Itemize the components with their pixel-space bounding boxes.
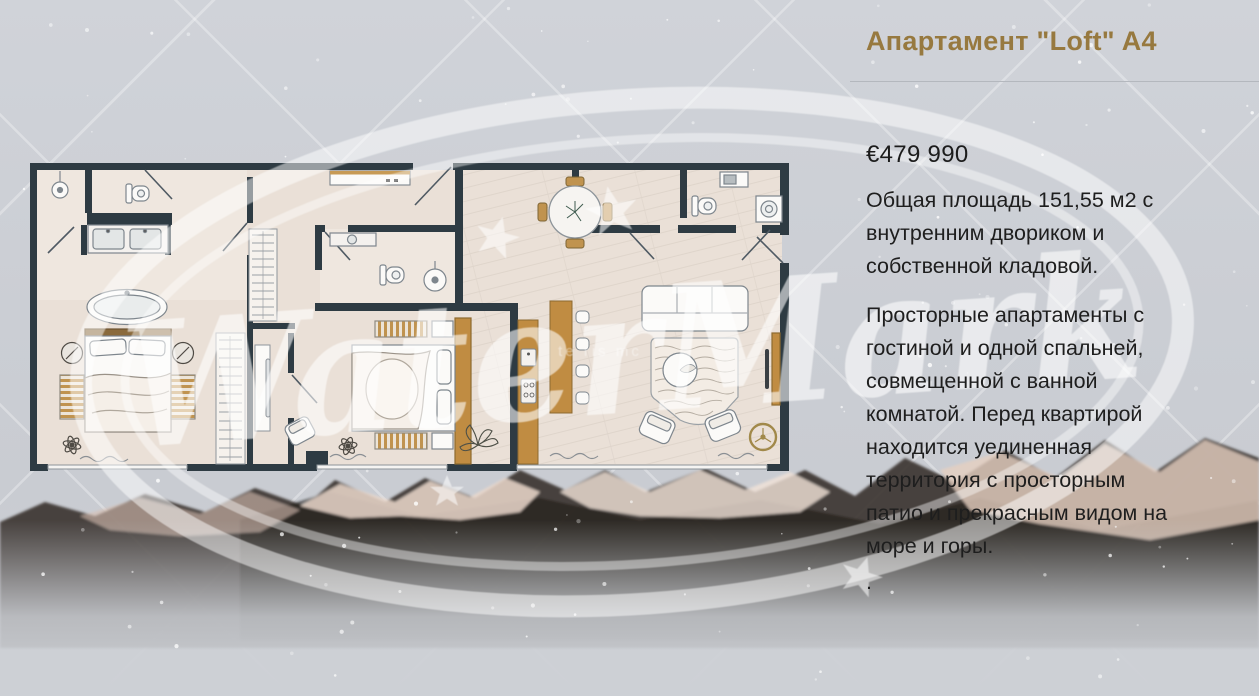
sofa-icon [642, 286, 748, 331]
listing-info: Апартамент "Loft" A4 €479 990 Общая площ… [866, 24, 1202, 599]
bedroom2-nightstand-bottom [432, 433, 453, 449]
double-vanity [88, 225, 168, 253]
listing-description-text: Просторные апартаменты с гостиной и одно… [866, 299, 1202, 563]
bedroom2-runner-bottom [375, 433, 427, 449]
kitchen-sink [521, 349, 536, 366]
rug-right [171, 375, 195, 419]
toilet-icon-bath2 [380, 265, 404, 285]
coffee-table-icon [663, 353, 697, 387]
bath2-vanity [330, 233, 376, 246]
nightstand-lamp-left [62, 343, 83, 364]
bedroom2-nightstand-top [432, 321, 453, 337]
washing-machine-icon [756, 196, 782, 222]
listing-price: €479 990 [866, 140, 1202, 170]
bathtub-icon [87, 290, 167, 325]
kitchen-island [550, 301, 572, 413]
laundry-shelf [720, 172, 748, 187]
cooktop-icon [521, 379, 536, 403]
tv-panel-bedroom2 [255, 345, 270, 431]
master-bed-headboard [85, 329, 171, 336]
closet-bottom [216, 333, 245, 464]
listing-trailing-dot: . [866, 566, 1202, 599]
bedroom2-runner-top [375, 321, 427, 337]
listing-area-text: Общая площадь 151,55 м2 с внутренним дво… [866, 184, 1202, 283]
patio-windows [48, 465, 767, 469]
rug-left [60, 375, 84, 419]
bedroom2-headboard-panel [455, 318, 471, 464]
listing-title: Апартамент "Loft" A4 [866, 24, 1202, 58]
storage-cabinet [330, 171, 410, 185]
master-bed-blanket [85, 373, 171, 432]
toilet-icon-wc [692, 196, 716, 216]
nightstand-lamp-right [173, 343, 194, 364]
page: WaterMark te ris mc Апартамент "Loft" A4… [0, 0, 1259, 696]
toilet-icon-master [126, 184, 149, 203]
floor-plan-image[interactable] [30, 163, 789, 471]
